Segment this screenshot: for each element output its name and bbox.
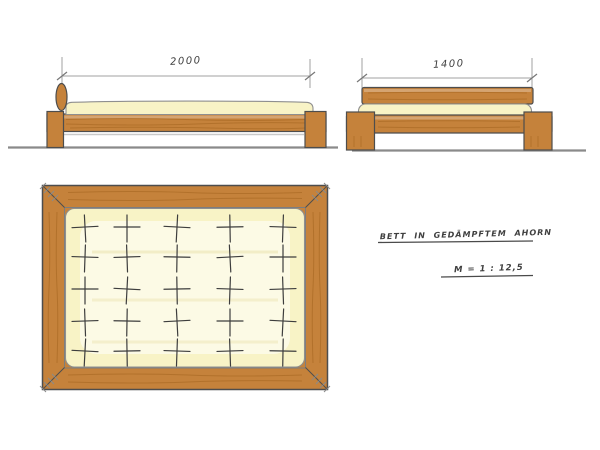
length-dimension-label: 2000: [170, 55, 202, 68]
bed-front-elevation: [347, 88, 553, 151]
title-underline: [378, 241, 533, 243]
drawing-title: BETT IN GEDÄMPFTEM AHORN: [380, 227, 552, 242]
annotations: BETT IN GEDÄMPFTEM AHORN M = 1 : 12,5: [378, 227, 552, 277]
front-view: 1400: [347, 58, 587, 151]
headboard-highlight: [364, 89, 531, 92]
width-dimension-label: 1400: [433, 58, 465, 71]
mattress-highlight: [80, 221, 290, 354]
length-dimension: 2000: [57, 55, 315, 90]
rail-highlight: [49, 116, 325, 119]
top-view: [40, 183, 330, 392]
bed-side-elevation: [47, 84, 326, 148]
headboard-edge: [56, 84, 67, 111]
side-mattress: [66, 101, 313, 114]
scale-underline: [441, 276, 533, 278]
drawing-sheet: 2000 1: [0, 0, 600, 450]
side-view: 2000: [8, 55, 338, 147]
drawing-scale: M = 1 : 12,5: [454, 263, 524, 275]
bed-technical-sketch: 2000 1: [0, 0, 600, 450]
side-left-leg: [47, 112, 64, 148]
rail-highlight: [349, 117, 550, 120]
side-right-leg: [305, 112, 326, 148]
